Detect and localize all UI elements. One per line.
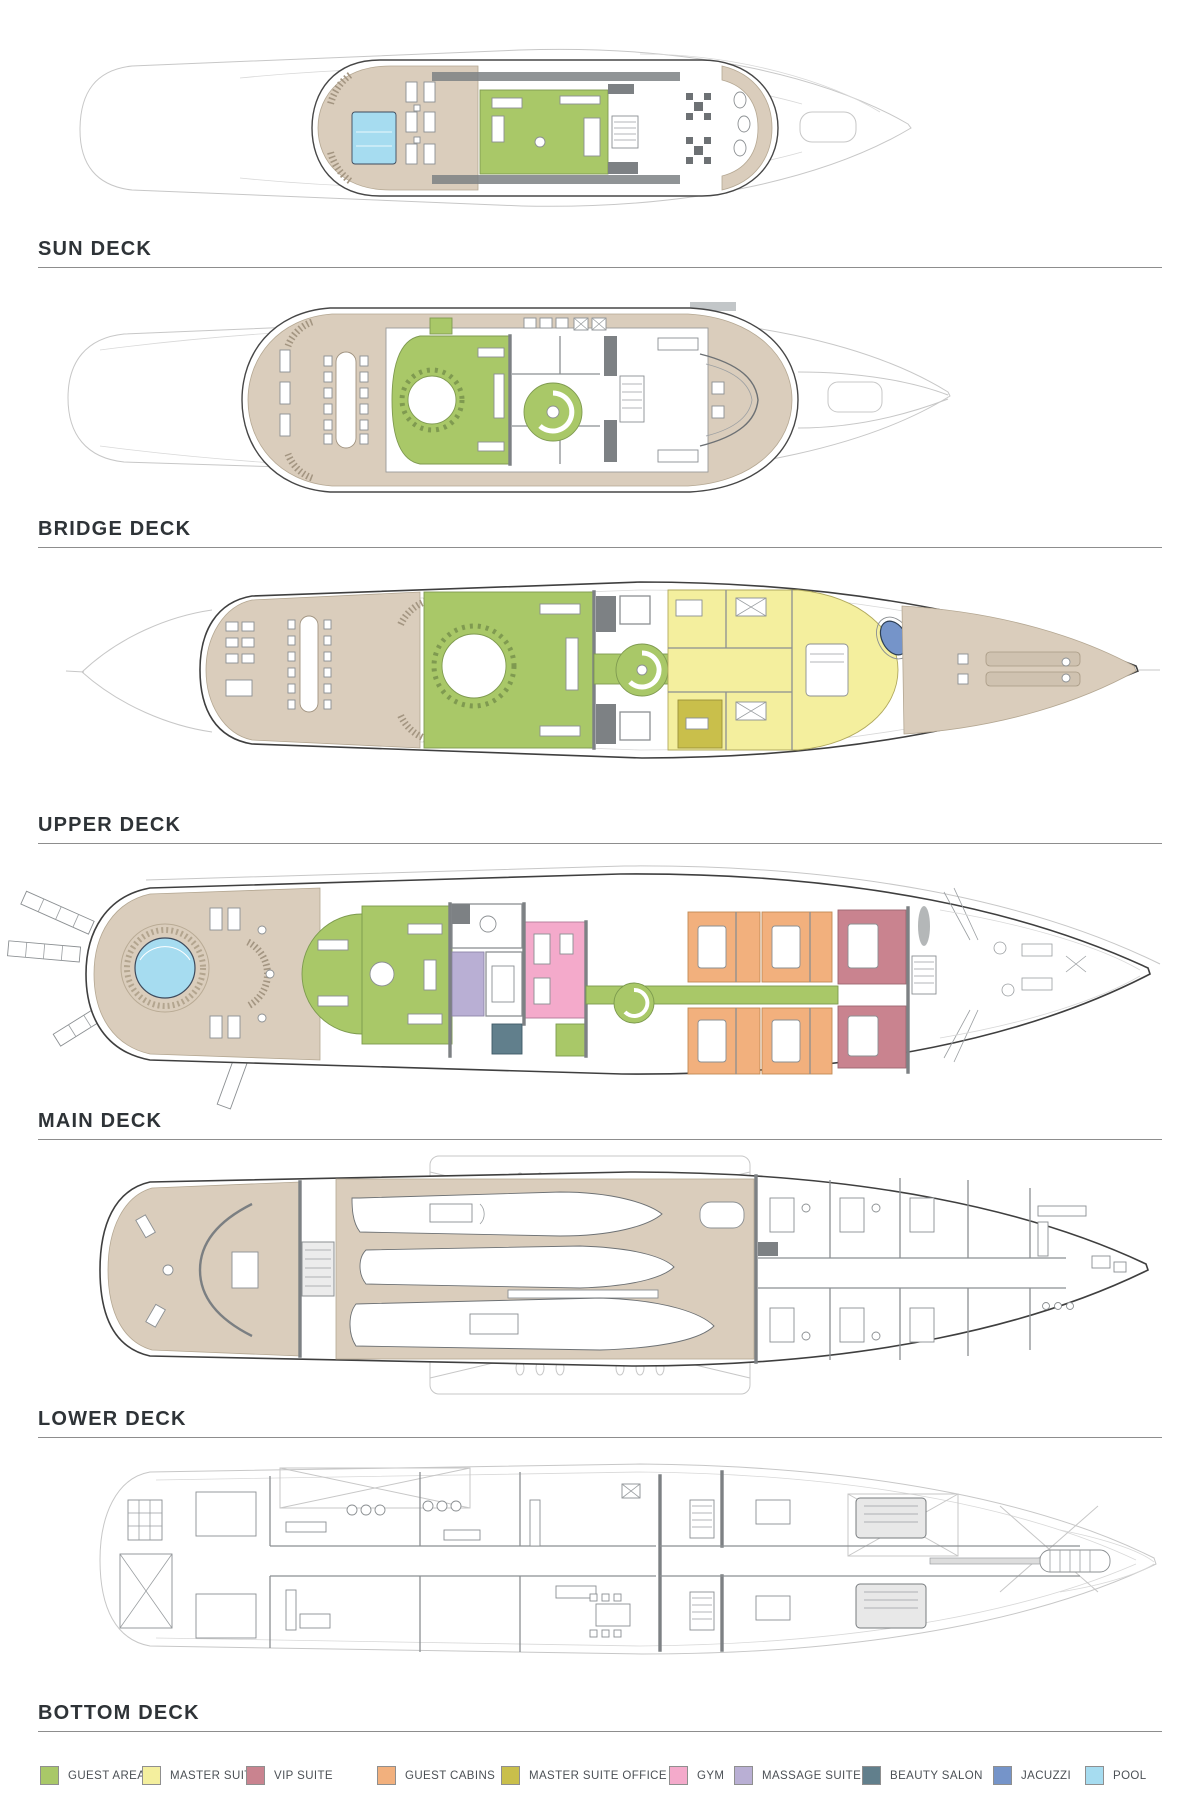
- lower-deck-beach-club: [108, 1182, 300, 1356]
- sun-deck-plan: [0, 20, 1200, 250]
- deck-label-main: MAIN DECK: [38, 1110, 162, 1132]
- bridge-deck-guest-area-small: [430, 318, 452, 334]
- massage-suite-swatch: [734, 1766, 753, 1785]
- legend-label: MASTER SUITE OFFICE: [529, 1770, 667, 1782]
- beauty-salon-swatch: [862, 1766, 881, 1785]
- sun-deck-pool: [352, 112, 396, 164]
- gym-swatch: [669, 1766, 688, 1785]
- legend-item-beauty-salon: BEAUTY SALON: [862, 1766, 983, 1785]
- bow-tunnel: [1040, 1530, 1154, 1592]
- legend-item-master-suite-office: MASTER SUITE OFFICE: [501, 1766, 667, 1785]
- legend-label: VIP SUITE: [274, 1770, 333, 1782]
- galley-stores: [270, 1472, 656, 1652]
- bottom-deck-plan: [0, 1444, 1200, 1702]
- legend-item-master-suite: MASTER SUITE: [142, 1766, 260, 1785]
- legend-item-jacuzzi: JACUZZI: [993, 1766, 1071, 1785]
- divider: [38, 1731, 1162, 1732]
- divider: [38, 547, 1162, 548]
- legend-item-guest-cabins: GUEST CABINS: [377, 1766, 495, 1785]
- legend-label: MASSAGE SUITE: [762, 1770, 861, 1782]
- legend-label: POOL: [1113, 1770, 1147, 1782]
- pool-swatch: [1085, 1766, 1104, 1785]
- divider: [38, 267, 1162, 268]
- legend-label: GUEST AREAS: [68, 1770, 153, 1782]
- divider: [38, 843, 1162, 844]
- divider: [38, 1437, 1162, 1438]
- legend-item-guest-areas: GUEST AREAS: [40, 1766, 153, 1785]
- deck-label-bridge: BRIDGE DECK: [38, 518, 191, 540]
- legend-label: JACUZZI: [1021, 1770, 1071, 1782]
- deck-label-bottom: BOTTOM DECK: [38, 1702, 200, 1724]
- main-deck-aft-deck: [94, 888, 320, 1060]
- legend-label: GYM: [697, 1770, 724, 1782]
- master-suite-office-swatch: [501, 1766, 520, 1785]
- main-deck-guest-rooms: [556, 1024, 586, 1056]
- main-deck-gym: [524, 922, 586, 1018]
- lower-deck-plan: [0, 1146, 1200, 1408]
- deck-label-sun: SUN DECK: [38, 238, 152, 260]
- legend-item-vip-suite: VIP SUITE: [246, 1766, 333, 1785]
- bridge-deck-plan: [0, 278, 1200, 518]
- yacht-deck-plans-page: SUN DECK: [0, 0, 1200, 1818]
- aft-stores: [120, 1492, 256, 1638]
- deck-label-lower: LOWER DECK: [38, 1408, 187, 1430]
- main-deck-massage-suite: [452, 952, 484, 1016]
- vip-suite-swatch: [246, 1766, 265, 1785]
- legend-item-gym: GYM: [669, 1766, 724, 1785]
- legend-label: BEAUTY SALON: [890, 1770, 983, 1782]
- upper-deck-fore-deck: [902, 606, 1136, 734]
- jacuzzi-swatch: [993, 1766, 1012, 1785]
- legend-item-massage-suite: MASSAGE SUITE: [734, 1766, 861, 1785]
- legend-label: GUEST CABINS: [405, 1770, 495, 1782]
- divider: [38, 1139, 1162, 1140]
- legend: GUEST AREAS MASTER SUITE VIP SUITE GUEST…: [0, 1766, 1200, 1796]
- overhang-braces: [280, 1468, 1098, 1592]
- upper-deck-plan: [0, 552, 1200, 814]
- guest-cabins-swatch: [377, 1766, 396, 1785]
- guest-areas-swatch: [40, 1766, 59, 1785]
- main-deck-beauty-salon: [492, 1024, 522, 1054]
- master-suite-swatch: [142, 1766, 161, 1785]
- main-deck-plan: [0, 848, 1200, 1110]
- engine-room: [660, 1472, 1080, 1650]
- deck-label-upper: UPPER DECK: [38, 814, 181, 836]
- legend-item-pool: POOL: [1085, 1766, 1147, 1785]
